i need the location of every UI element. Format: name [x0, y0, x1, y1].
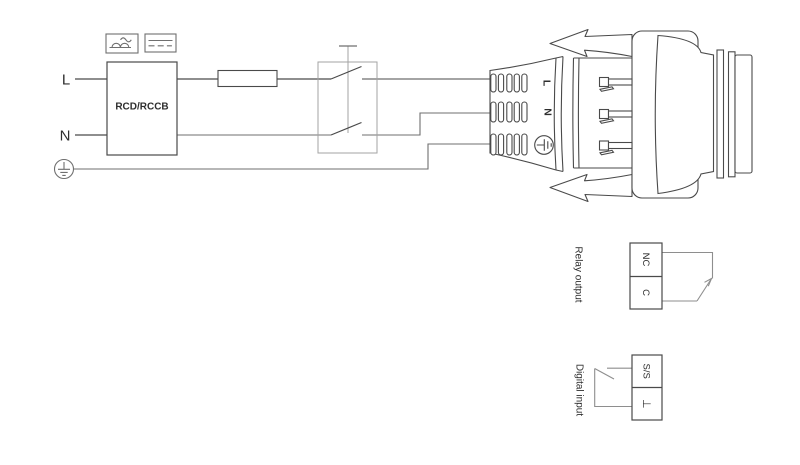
digital-input-section: S/S ⊥ Digital input [574, 355, 663, 420]
digital-terminal-ss-label: S/S [641, 364, 652, 379]
earth-icon [55, 160, 74, 179]
n-wire-to-plug [362, 113, 490, 135]
connector-pins [600, 78, 633, 155]
relay-switch-arm [697, 279, 712, 302]
relay-output-label: Relay output [573, 246, 584, 302]
plug-bevel [554, 57, 563, 172]
relay-terminal-nc-label: NC [640, 253, 651, 267]
rcd-rccb-box: RCD/RCCB [107, 62, 177, 155]
connector-ring-2 [729, 52, 736, 177]
switch-arm-l [331, 67, 362, 80]
digital-terminal-ground-label: ⊥ [640, 399, 652, 409]
plug-n-label: N [541, 108, 553, 116]
switch-icon [318, 46, 377, 153]
terminal-l-label: L [62, 72, 70, 89]
plug-earth-icon [535, 136, 554, 155]
pump-connector [550, 30, 752, 202]
rcd-rccb-label: RCD/RCCB [115, 102, 168, 113]
rcd-pulsating-dc-icon [106, 34, 138, 53]
digital-input-label: Digital input [574, 364, 585, 416]
switch-arm-n [331, 123, 362, 136]
connector-end-cap [735, 55, 752, 173]
relay-output-section: NC C Relay output [573, 243, 713, 309]
terminal-n-label: N [60, 128, 71, 145]
rcd-smooth-dc-icon [145, 34, 176, 52]
digital-switch-arm [595, 369, 614, 380]
connector-dome [655, 36, 713, 194]
plug-grip-ribs [491, 74, 527, 155]
relay-wires [662, 253, 713, 302]
fuse-icon [218, 71, 277, 87]
relay-terminal-c-label: C [640, 289, 651, 296]
plug-l-label: L [540, 80, 552, 87]
wiring-diagram: L N RCD/RCCB [0, 0, 800, 465]
connector-ring-1 [717, 50, 724, 178]
clip-arrow-top-icon [550, 30, 632, 57]
digital-wires [595, 368, 632, 406]
wiring-diagram-page: L N RCD/RCCB [0, 0, 800, 465]
relay-arm-arrowhead [705, 279, 712, 287]
clip-arrow-bottom-icon [550, 175, 632, 202]
